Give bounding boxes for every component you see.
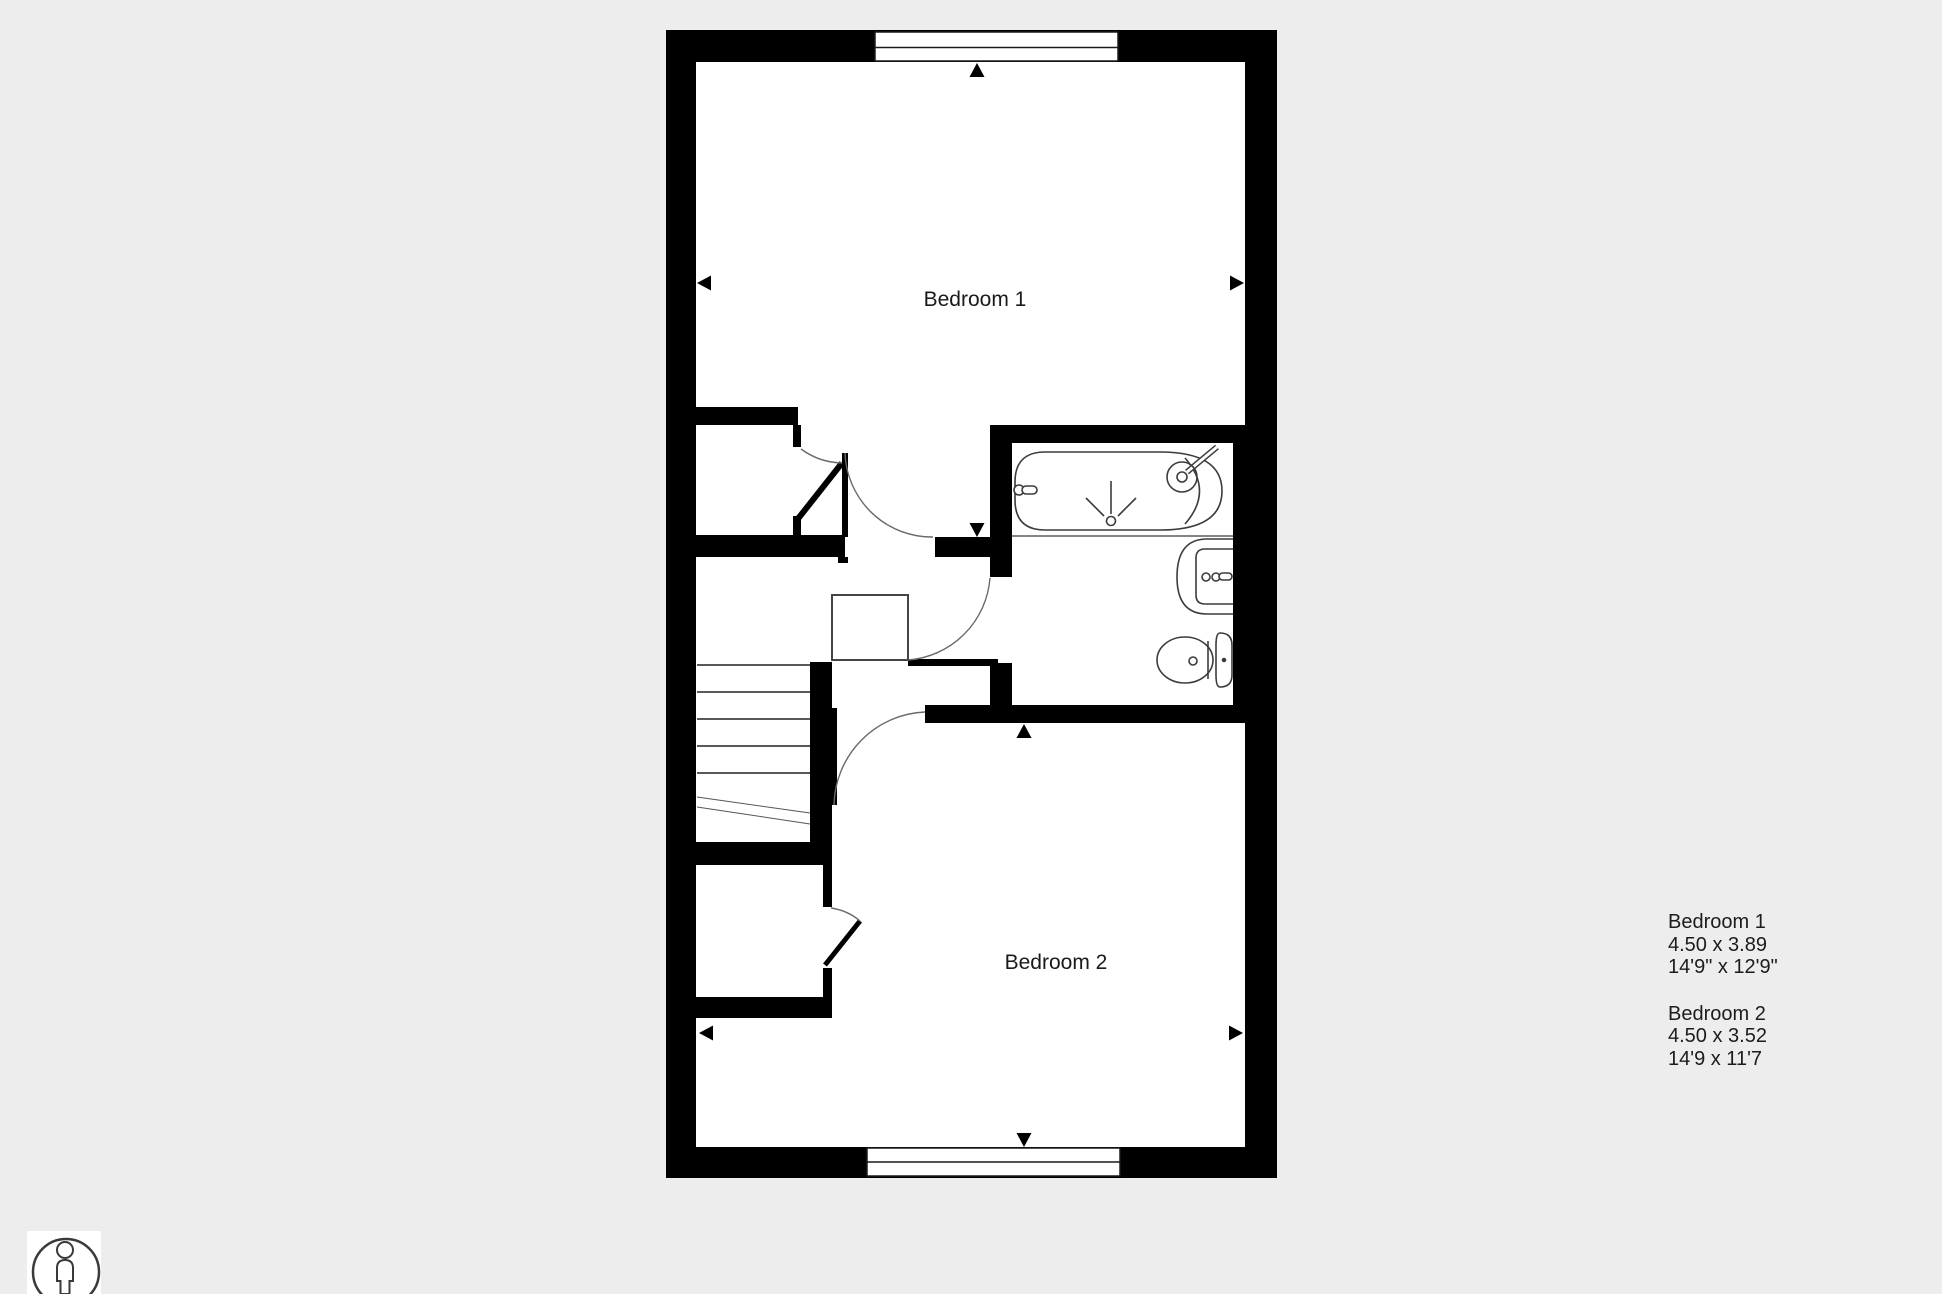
floor-plan-drawing: Bedroom 1 Bedroom 2	[0, 0, 1942, 1294]
dimensions-legend: Bedroom 1 4.50 x 3.89 14'9" x 12'9" Bedr…	[1668, 911, 1778, 1094]
bedroom1-label: Bedroom 1	[924, 288, 1027, 311]
wall-left	[666, 30, 696, 1178]
wall-stairs-bottom	[696, 842, 832, 865]
hall-hatch-square	[832, 595, 908, 660]
wall-closet2-right-upper	[823, 865, 832, 907]
sink-icon	[1177, 539, 1233, 614]
legend-room-metric: 4.50 x 3.52	[1668, 1025, 1778, 1048]
window-bottom	[867, 1148, 1120, 1176]
wall-closet2-right-lower	[823, 968, 832, 997]
wall-right	[1245, 30, 1277, 1178]
legend-room-name: Bedroom 2	[1668, 1003, 1778, 1026]
wall-bathroom-left-lower	[990, 663, 1012, 705]
legend-room-imperial: 14'9" x 12'9"	[1668, 956, 1778, 979]
wall-closet2-bottom	[696, 997, 832, 1018]
wall-stairs-right	[810, 662, 832, 865]
wall-closet1-top	[696, 407, 798, 425]
window-top	[875, 32, 1118, 61]
wall-bedroom2-top	[925, 705, 1245, 723]
bedroom2-label: Bedroom 2	[1005, 951, 1108, 974]
legend-room-metric: 4.50 x 3.89	[1668, 934, 1778, 957]
bathtub-icon	[1014, 447, 1222, 530]
person-figure-icon	[27, 1231, 101, 1294]
wall-bathroom-top	[990, 425, 1233, 443]
legend-bedroom2: Bedroom 2 4.50 x 3.52 14'9 x 11'7	[1668, 1003, 1778, 1071]
wall-hall-top	[696, 535, 845, 557]
floor-plan-page: Bedroom 1 Bedroom 2 Bedroom 1 4.50 x 3.8…	[0, 0, 1942, 1294]
wall-hall-top-right	[935, 537, 990, 557]
legend-bedroom1: Bedroom 1 4.50 x 3.89 14'9" x 12'9"	[1668, 911, 1778, 979]
wall-right-bathroom	[1233, 425, 1245, 723]
legend-room-name: Bedroom 1	[1668, 911, 1778, 934]
toilet-icon	[1157, 633, 1232, 687]
wall-door-jamb	[838, 557, 848, 563]
wall-bathroom-left-upper	[990, 443, 1012, 577]
legend-room-imperial: 14'9 x 11'7	[1668, 1048, 1778, 1071]
wall-closet1-jamb-top	[793, 425, 801, 447]
